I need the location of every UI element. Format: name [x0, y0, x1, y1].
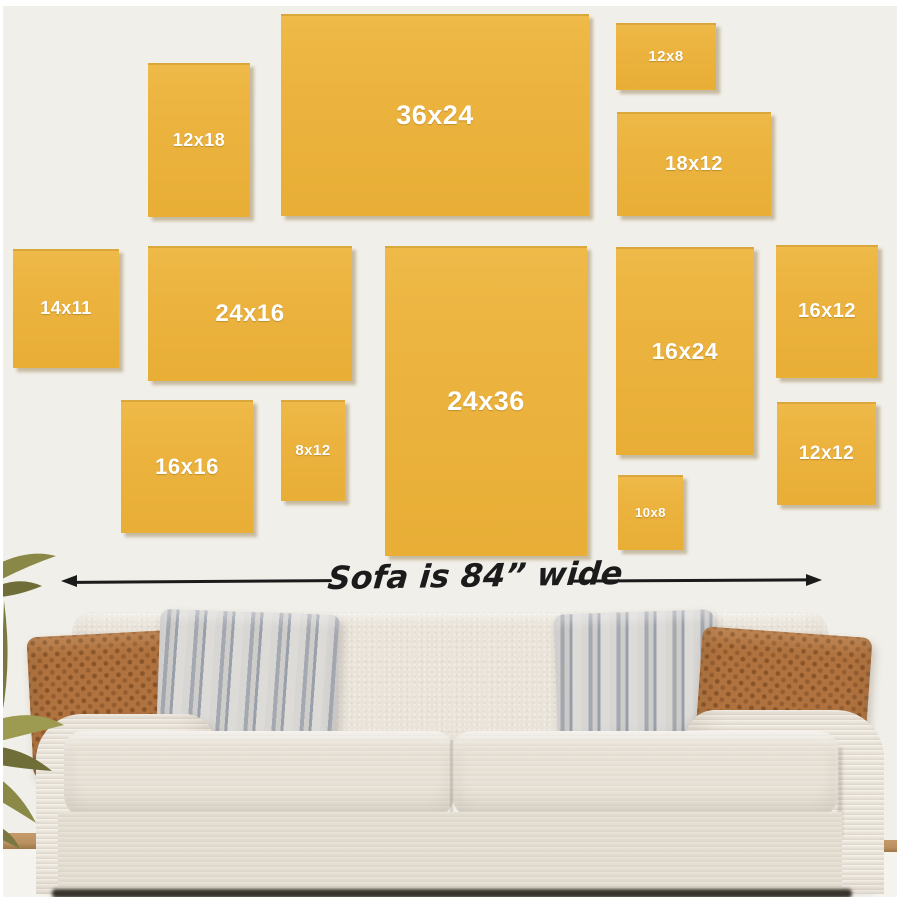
arrowhead-left-icon: [61, 575, 77, 587]
wall-art-size-guide: 12x1836x2412x818x1214x1124x1624x3616x241…: [0, 0, 900, 900]
arrowhead-right-icon: [806, 574, 822, 586]
sofa-width-annotation: Sofa is 84” wide: [0, 0, 900, 900]
dimension-line-right: [572, 578, 808, 582]
sofa-width-label: Sofa is 84” wide: [326, 555, 580, 597]
dimension-line-left: [76, 579, 332, 584]
